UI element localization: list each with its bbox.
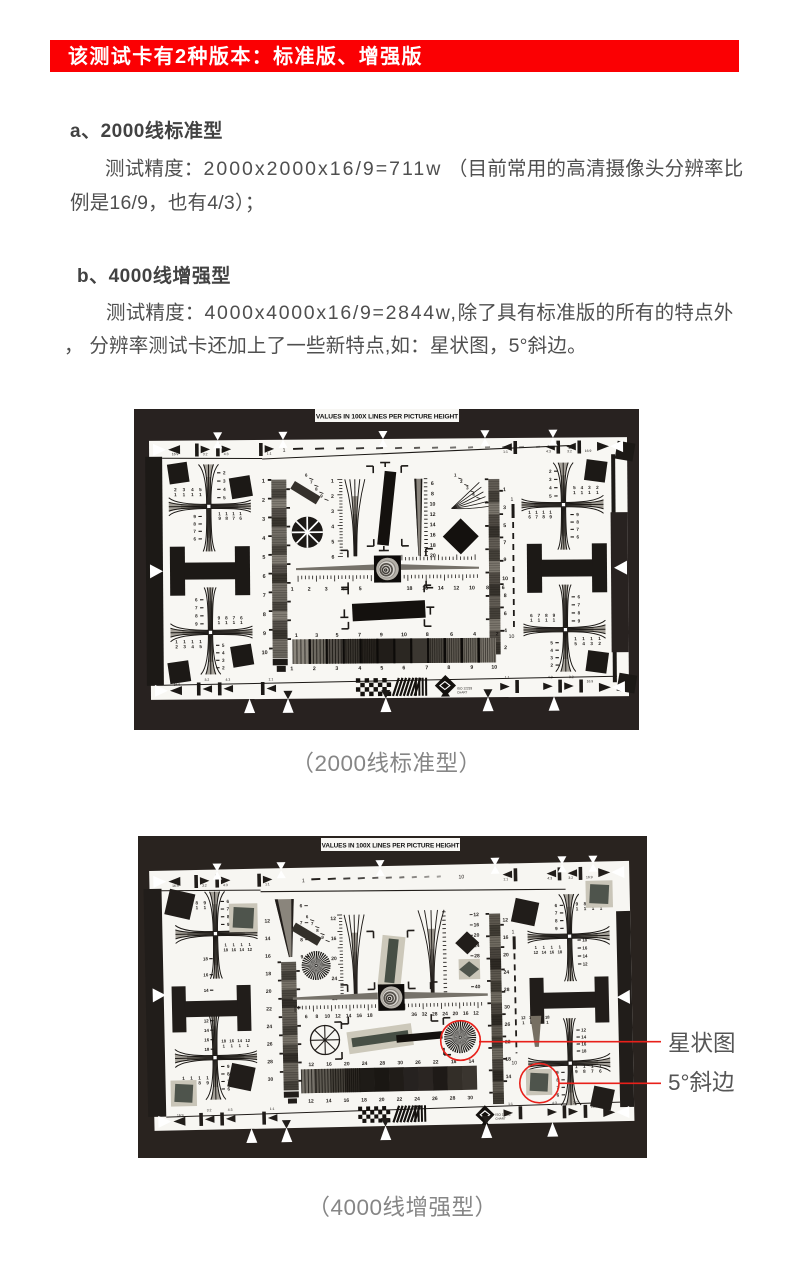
svg-text:18: 18 — [558, 949, 563, 954]
svg-text:3:2: 3:2 — [207, 1108, 212, 1112]
svg-text:14: 14 — [239, 947, 244, 952]
svg-text:14: 14 — [542, 950, 547, 955]
svg-text:4: 4 — [504, 628, 507, 634]
svg-text:30: 30 — [268, 1077, 274, 1083]
svg-text:16:9: 16:9 — [172, 452, 179, 456]
svg-text:14: 14 — [204, 1028, 210, 1033]
svg-text:16: 16 — [331, 936, 337, 942]
svg-text:14: 14 — [265, 936, 271, 942]
svg-text:22: 22 — [505, 1039, 511, 1045]
svg-text:2: 2 — [308, 587, 311, 593]
svg-text:12: 12 — [581, 1027, 587, 1032]
svg-text:24: 24 — [414, 1096, 420, 1102]
svg-text:18: 18 — [582, 937, 588, 942]
svg-text:3:2: 3:2 — [567, 449, 572, 453]
svg-text:9: 9 — [301, 954, 304, 960]
svg-text:12: 12 — [430, 512, 436, 518]
svg-text:1: 1 — [290, 666, 293, 672]
svg-text:18: 18 — [581, 1048, 587, 1053]
svg-text:3:2: 3:2 — [202, 884, 207, 888]
svg-text:16:9: 16:9 — [586, 875, 593, 879]
svg-text:2: 2 — [331, 494, 334, 500]
svg-text:24: 24 — [362, 1061, 368, 1067]
svg-text:26: 26 — [415, 1060, 421, 1066]
svg-text:3: 3 — [262, 517, 265, 523]
svg-text:12: 12 — [330, 916, 336, 922]
svg-text:CHART: CHART — [495, 1117, 506, 1121]
svg-text:10: 10 — [458, 874, 464, 880]
svg-text:10: 10 — [325, 1014, 331, 1020]
svg-text:16:9: 16:9 — [174, 683, 181, 687]
svg-text:12: 12 — [264, 918, 270, 924]
svg-text:9: 9 — [470, 665, 473, 671]
svg-text:12: 12 — [502, 917, 508, 923]
svg-text:12: 12 — [453, 585, 459, 591]
svg-text:20: 20 — [331, 956, 337, 962]
svg-text:4: 4 — [262, 536, 265, 542]
svg-text:16: 16 — [344, 1098, 350, 1104]
svg-text:6: 6 — [305, 1014, 308, 1020]
svg-text:14: 14 — [581, 1034, 587, 1039]
svg-text:2: 2 — [262, 498, 265, 504]
svg-text:10: 10 — [262, 650, 268, 656]
svg-text:6: 6 — [502, 585, 505, 591]
svg-text:8: 8 — [263, 612, 266, 618]
svg-text:18: 18 — [265, 971, 271, 977]
svg-text:1: 1 — [291, 587, 294, 593]
svg-text:4:3: 4:3 — [223, 883, 228, 887]
svg-text:18: 18 — [204, 1047, 210, 1052]
svg-text:12: 12 — [308, 1062, 314, 1068]
svg-text:12: 12 — [473, 912, 479, 918]
svg-text:16:9: 16:9 — [177, 1113, 184, 1117]
svg-text:8: 8 — [315, 1014, 318, 1020]
svg-text:12: 12 — [534, 950, 539, 955]
svg-text:6: 6 — [450, 632, 453, 638]
svg-text:1:1: 1:1 — [268, 677, 273, 681]
svg-text:1: 1 — [512, 929, 515, 935]
svg-text:VALUES IN 100X LINES PER PICTU: VALUES IN 100X LINES PER PICTURE HEIGHT — [316, 413, 458, 420]
svg-text:16: 16 — [265, 954, 271, 960]
svg-text:1:1: 1:1 — [508, 1102, 513, 1106]
svg-text:14: 14 — [582, 953, 588, 958]
svg-text:28: 28 — [474, 953, 480, 959]
svg-text:18: 18 — [223, 947, 228, 952]
svg-text:32: 32 — [422, 1012, 428, 1018]
svg-text:14: 14 — [506, 1074, 512, 1080]
svg-text:5: 5 — [262, 555, 265, 561]
svg-text:20: 20 — [474, 933, 480, 939]
svg-text:9: 9 — [263, 631, 266, 637]
svg-text:8: 8 — [300, 937, 303, 943]
svg-text:10: 10 — [430, 502, 436, 508]
svg-text:8: 8 — [486, 585, 489, 591]
svg-text:3:2: 3:2 — [573, 1101, 578, 1105]
svg-text:6: 6 — [504, 611, 507, 617]
svg-text:10: 10 — [511, 1060, 517, 1066]
svg-text:24: 24 — [332, 976, 338, 982]
svg-text:16: 16 — [203, 972, 209, 977]
svg-text:1:1: 1:1 — [265, 882, 270, 886]
svg-text:16:9: 16:9 — [587, 679, 594, 683]
svg-text:5: 5 — [336, 633, 339, 639]
svg-text:16:9: 16:9 — [591, 1105, 598, 1109]
svg-text:3: 3 — [503, 505, 506, 511]
svg-text:12: 12 — [473, 1011, 479, 1017]
svg-text:5: 5 — [503, 523, 506, 529]
svg-text:3:2: 3:2 — [203, 452, 208, 456]
svg-text:4:3: 4:3 — [224, 452, 229, 456]
svg-text:26: 26 — [267, 1042, 273, 1048]
svg-text:3:2: 3:2 — [568, 876, 573, 880]
svg-text:5: 5 — [331, 539, 334, 545]
svg-text:1: 1 — [331, 479, 334, 485]
svg-text:8: 8 — [504, 593, 507, 599]
svg-text:10: 10 — [469, 585, 475, 591]
svg-text:30: 30 — [397, 1060, 403, 1066]
svg-text:6: 6 — [402, 665, 405, 671]
svg-text:2: 2 — [504, 645, 507, 651]
svg-text:16: 16 — [473, 922, 479, 928]
svg-text:20: 20 — [453, 1011, 459, 1017]
svg-text:7: 7 — [425, 665, 428, 671]
svg-text:9: 9 — [380, 632, 383, 638]
svg-text:10: 10 — [509, 634, 515, 640]
svg-text:1: 1 — [510, 497, 513, 503]
svg-text:3: 3 — [331, 509, 334, 515]
svg-text:7: 7 — [503, 540, 506, 546]
svg-text:6: 6 — [263, 574, 266, 580]
svg-text:3: 3 — [335, 666, 338, 672]
svg-text:3: 3 — [325, 586, 328, 592]
svg-text:10: 10 — [502, 576, 508, 582]
svg-text:1:1: 1:1 — [270, 1107, 275, 1111]
svg-text:4: 4 — [358, 666, 361, 672]
svg-text:16: 16 — [550, 949, 555, 954]
svg-text:16: 16 — [356, 1013, 362, 1019]
svg-text:16: 16 — [503, 935, 509, 941]
svg-text:3:2: 3:2 — [569, 675, 574, 679]
svg-text:24: 24 — [442, 1011, 448, 1017]
svg-text:16: 16 — [326, 1062, 332, 1068]
svg-text:4:3: 4:3 — [225, 678, 230, 682]
svg-text:14: 14 — [204, 988, 210, 993]
svg-text:4:3: 4:3 — [546, 450, 551, 454]
svg-text:14: 14 — [438, 586, 444, 592]
svg-text:1:1: 1:1 — [503, 450, 508, 454]
svg-text:12: 12 — [308, 1099, 314, 1105]
svg-text:1:1: 1:1 — [267, 452, 272, 456]
svg-text:16: 16 — [430, 533, 436, 539]
svg-text:14: 14 — [430, 522, 436, 528]
svg-text:40: 40 — [475, 984, 481, 990]
svg-text:8: 8 — [447, 665, 450, 671]
svg-text:14: 14 — [469, 1059, 475, 1065]
svg-text:30: 30 — [504, 1004, 510, 1010]
svg-text:8: 8 — [431, 491, 434, 497]
svg-text:26: 26 — [505, 1022, 511, 1028]
svg-text:12: 12 — [204, 1018, 210, 1023]
svg-text:18: 18 — [361, 1097, 367, 1103]
svg-text:12: 12 — [335, 1013, 341, 1019]
svg-text:30: 30 — [467, 1095, 473, 1101]
svg-text:1:1: 1:1 — [503, 877, 508, 881]
svg-text:9: 9 — [503, 557, 506, 563]
svg-text:4:3: 4:3 — [547, 876, 552, 880]
svg-text:16: 16 — [582, 945, 588, 950]
svg-text:CHART: CHART — [457, 690, 467, 694]
svg-text:16: 16 — [581, 1041, 587, 1046]
svg-text:14: 14 — [326, 1098, 332, 1104]
svg-text:16:9: 16:9 — [172, 884, 179, 888]
svg-text:28: 28 — [380, 1061, 386, 1067]
svg-text:4: 4 — [331, 524, 334, 530]
svg-text:1: 1 — [295, 633, 298, 639]
svg-text:10: 10 — [491, 665, 497, 671]
svg-text:5: 5 — [359, 586, 362, 592]
svg-text:2: 2 — [496, 631, 499, 637]
svg-text:26: 26 — [432, 1096, 438, 1102]
svg-text:5: 5 — [380, 666, 383, 672]
svg-text:12: 12 — [583, 961, 589, 966]
svg-text:1: 1 — [503, 487, 506, 493]
svg-text:16: 16 — [463, 1011, 469, 1017]
svg-text:7: 7 — [263, 593, 266, 599]
svg-text:4: 4 — [473, 632, 476, 638]
svg-text:7: 7 — [358, 633, 361, 639]
svg-text:22: 22 — [433, 1059, 439, 1065]
svg-text:18: 18 — [505, 1057, 511, 1063]
svg-text:8: 8 — [426, 632, 429, 638]
svg-text:16: 16 — [231, 947, 236, 952]
svg-text:20: 20 — [379, 1097, 385, 1103]
svg-text:4:3: 4:3 — [552, 1101, 557, 1105]
svg-text:22: 22 — [266, 1006, 272, 1012]
svg-text:2: 2 — [313, 666, 316, 672]
svg-text:16:9: 16:9 — [585, 449, 592, 453]
svg-text:18: 18 — [203, 956, 209, 961]
svg-text:20: 20 — [503, 952, 509, 958]
svg-text:10: 10 — [401, 632, 407, 638]
svg-text:22: 22 — [397, 1097, 403, 1103]
svg-text:36: 36 — [411, 1012, 417, 1018]
svg-text:16: 16 — [204, 1037, 210, 1042]
svg-text:28: 28 — [267, 1059, 273, 1065]
svg-text:3: 3 — [315, 633, 318, 639]
svg-text:18: 18 — [407, 586, 413, 592]
svg-text:28: 28 — [432, 1011, 438, 1017]
svg-text:6: 6 — [331, 555, 334, 561]
svg-text:24: 24 — [503, 970, 509, 976]
svg-text:28: 28 — [504, 987, 510, 993]
svg-text:4:3: 4:3 — [548, 675, 553, 679]
svg-text:1: 1 — [283, 448, 286, 454]
svg-text:18: 18 — [367, 1013, 373, 1019]
svg-text:6: 6 — [431, 481, 434, 487]
svg-text:16: 16 — [422, 586, 428, 592]
svg-text:12: 12 — [247, 947, 252, 952]
svg-text:1: 1 — [262, 479, 265, 485]
svg-text:VALUES IN 100X LINES PER PICTU: VALUES IN 100X LINES PER PICTURE HEIGHT — [322, 842, 460, 849]
svg-text:24: 24 — [267, 1024, 273, 1030]
svg-text:3:2: 3:2 — [204, 678, 209, 682]
svg-text:20: 20 — [266, 989, 272, 995]
svg-text:20: 20 — [344, 1061, 350, 1067]
svg-text:6: 6 — [299, 903, 302, 909]
svg-text:1: 1 — [302, 878, 305, 884]
svg-text:28: 28 — [450, 1096, 456, 1102]
svg-text:1:1: 1:1 — [505, 676, 510, 680]
svg-text:4:3: 4:3 — [228, 1108, 233, 1112]
